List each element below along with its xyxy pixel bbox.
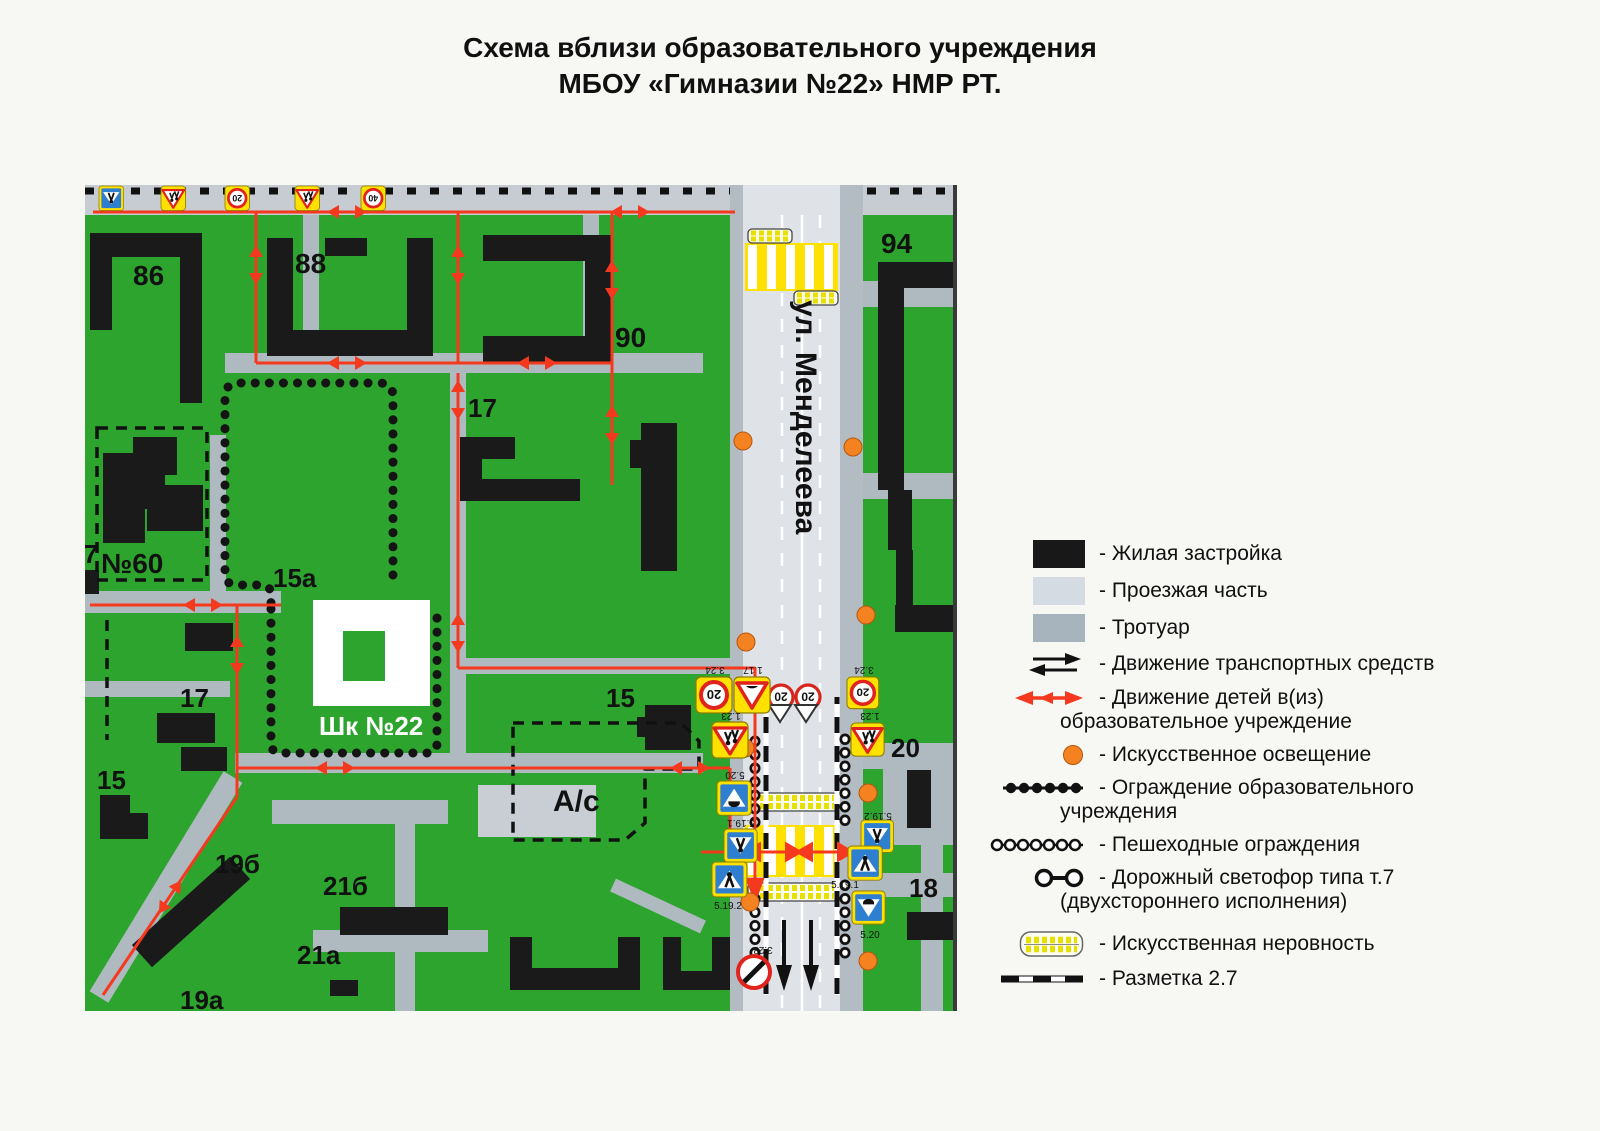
code-5-20-left: 5.20 (725, 769, 745, 780)
legend-label: - Ограждение образовательного (1099, 776, 1414, 800)
label-street-name: ул. Менделеева (789, 300, 822, 535)
legend-item-ped-fence: - Пешеходные ограждения (975, 833, 1565, 857)
label-building-18: 18 (909, 873, 938, 903)
marking-2-7-icon (999, 972, 1085, 986)
map-right-border (953, 185, 957, 1011)
legend-item-vehicle-traffic: - Движение транспортных средств (975, 651, 1565, 677)
legend-item-housing: - Жилая застройка (975, 540, 1565, 568)
city-map: 20 40 (85, 185, 957, 1011)
sign-limit20-top (225, 186, 249, 210)
housing-swatch (1033, 540, 1085, 568)
legend-label: - Пешеходные ограждения (1099, 833, 1360, 857)
sign-children-top2 (295, 186, 319, 210)
label-building-19a: 19а (180, 985, 224, 1011)
legend-item-school-fence: - Ограждение образовательного учреждения (975, 776, 1565, 824)
label-building-86: 86 (133, 260, 164, 291)
legend-label: - Движение транспортных средств (1099, 652, 1434, 676)
code-3-24-right: 3.24 (854, 664, 874, 675)
sign-5-20-right (852, 891, 885, 924)
speed-bump-icon (1019, 930, 1085, 958)
legend-item-lighting: - Искусственное освещение (975, 743, 1565, 767)
label-building-60: №60 (101, 548, 163, 579)
label-building-21a: 21а (297, 940, 341, 970)
scheme-page: Схема вблизи образовательного учреждения… (0, 0, 1600, 1131)
legend-label: - Дорожный светофор типа т.7 (1099, 866, 1394, 890)
code-5-20-right: 5.20 (860, 930, 880, 941)
vehicle-arrows-icon (1023, 651, 1085, 677)
sign-1-17-left (734, 677, 770, 713)
crosswalk-top (745, 243, 838, 291)
legend-label: - Тротуар (1099, 616, 1190, 640)
legend-label: - Движение детей в(из) (1099, 686, 1324, 710)
code-5-19-1-right: 5.19.1 (831, 880, 859, 891)
sign-children-top1 (161, 186, 185, 210)
legend-label: - Проезжая часть (1099, 579, 1268, 603)
legend-item-traffic-light: - Дорожный светофор типа т.7 (двухсторон… (975, 866, 1565, 914)
sign-1-23-left (712, 722, 748, 758)
label-building-19b: 19б (215, 849, 260, 879)
school-building (313, 600, 430, 706)
sign-3-24-left (696, 677, 732, 713)
label-building-15-left: 15 (97, 765, 126, 795)
label-school: Шк №22 (319, 711, 423, 741)
sign-5-20-left (717, 781, 751, 815)
legend-label-line2: образовательное учреждение (1060, 710, 1565, 734)
code-1-23-left: 1.23 (721, 710, 741, 721)
label-building-17-edge: 17 (85, 539, 98, 569)
roadway-swatch (1033, 577, 1085, 605)
sign-limit40-top (361, 186, 385, 210)
lamp-icon (1061, 743, 1085, 767)
children-arrows-icon (1013, 690, 1085, 706)
legend-label: - Искусственное освещение (1099, 743, 1371, 767)
ped-fence-icon (989, 837, 1085, 853)
label-building-15-mid: 15 (606, 683, 635, 713)
legend-item-marking27: - Разметка 2.7 (975, 967, 1565, 991)
label-building-21b: 21б (323, 871, 368, 901)
legend-label-line2: (двухстороннего исполнения) (1060, 890, 1565, 914)
code-5-19-2-left: 5.19.2 (714, 901, 742, 912)
label-building-90: 90 (615, 322, 646, 353)
label-building-17-top: 17 (468, 393, 497, 423)
legend-item-bump: - Искусственная неровность (975, 930, 1565, 958)
sign-5-19-1-left (724, 829, 757, 862)
code-1-23-right: 1.23 (860, 710, 880, 721)
code-5-19-1-left: 5.19.1 (727, 817, 755, 828)
legend-item-roadway: - Проезжая часть (975, 577, 1565, 605)
legend-label: - Жилая застройка (1099, 542, 1282, 566)
code-1-17-left: 1.17 (743, 664, 763, 675)
sign-ped-top (99, 186, 123, 210)
sign-1-23-right (851, 723, 884, 756)
label-building-20: 20 (891, 733, 920, 763)
page-title: Схема вблизи образовательного учреждения… (0, 30, 1560, 103)
sign-5-19-2-left (712, 862, 747, 897)
label-building-17-left: 17 (180, 683, 209, 713)
legend-label-line2: учреждения (1060, 800, 1565, 824)
sign-5-19-1-right (848, 846, 882, 880)
legend-item-children-traffic: - Движение детей в(из) образовательное у… (975, 686, 1565, 734)
code-3-24-left: 3.24 (705, 664, 725, 675)
legend: - Жилая застройка - Проезжая часть - Тро… (975, 540, 1565, 1000)
label-parking: А/с (553, 785, 600, 818)
map-canvas: 20 40 (85, 185, 957, 1011)
title-line1: Схема вблизи образовательного учреждения (0, 30, 1560, 66)
title-line2: МБОУ «Гимназии №22» НМР РТ. (0, 66, 1560, 102)
legend-item-sidewalk: - Тротуар (975, 614, 1565, 642)
label-building-15a: 15а (273, 563, 317, 593)
sidewalk-swatch (1033, 614, 1085, 642)
code-bottom-sign: 3.28 (753, 944, 773, 955)
traffic-light-icon (1033, 867, 1085, 889)
legend-label: - Разметка 2.7 (1099, 967, 1238, 991)
legend-label: - Искусственная неровность (1099, 932, 1375, 956)
school-fence-icon (1001, 780, 1085, 796)
code-5-19-2-right: 5.19.2 (864, 810, 892, 821)
label-building-88: 88 (295, 248, 326, 279)
sign-no-stopping (738, 956, 770, 988)
label-building-94: 94 (881, 228, 913, 259)
sign-3-24-right (847, 677, 879, 709)
